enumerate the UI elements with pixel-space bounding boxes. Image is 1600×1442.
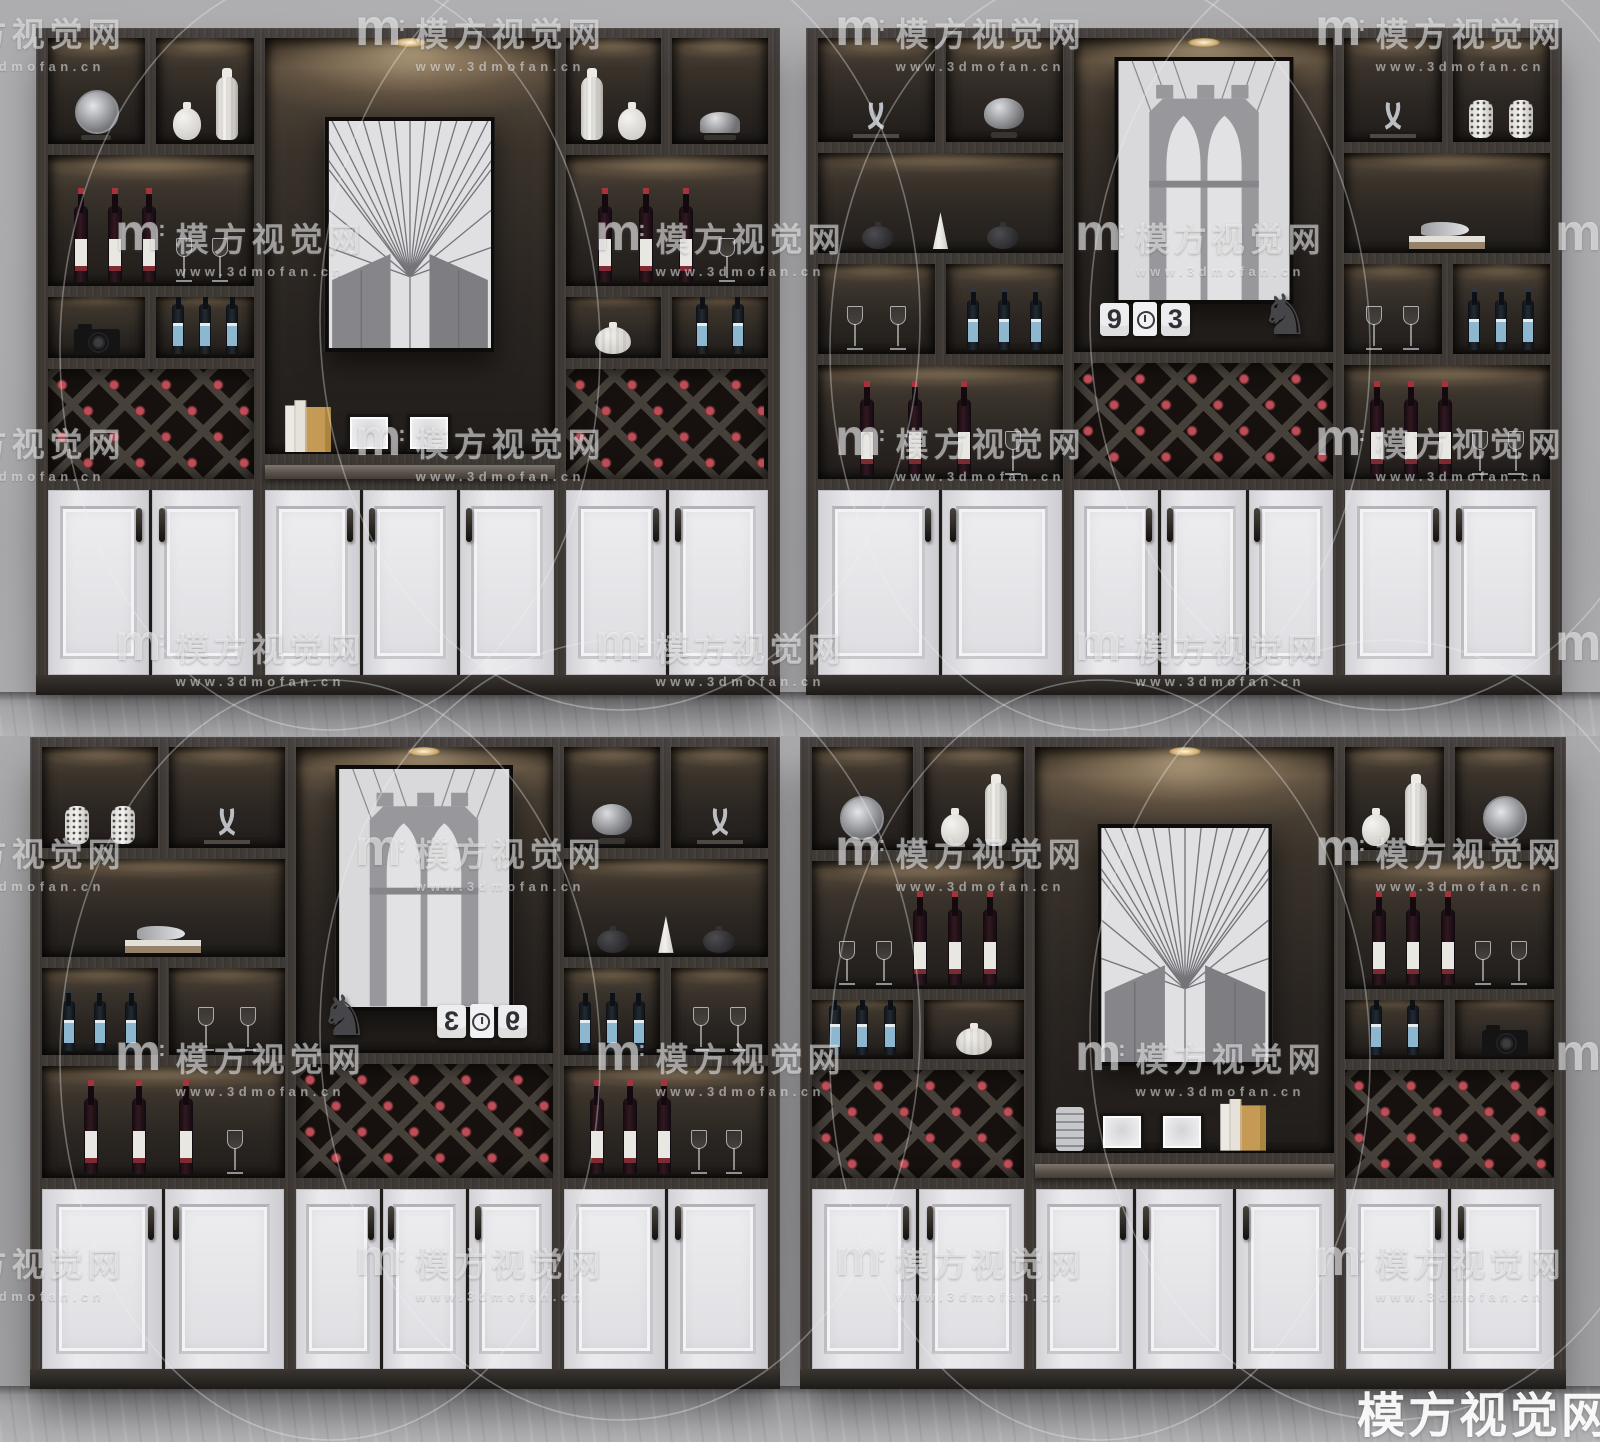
- shelf-niche: [818, 264, 935, 354]
- clock-digit: 3: [1161, 303, 1190, 336]
- liquor-bottle: [1370, 1005, 1382, 1055]
- cabinet-frame: 93♞: [806, 28, 1562, 675]
- shelf-items: [823, 909, 1014, 985]
- cabinet-door: [469, 1189, 552, 1369]
- cabinet-top-left: [36, 28, 780, 695]
- shelf-items: [576, 206, 758, 282]
- lower-doors: [42, 1189, 768, 1369]
- shelf-niche: [946, 38, 1063, 142]
- cabinet-door: [919, 1189, 1023, 1369]
- wine-bottle: [1441, 909, 1455, 985]
- shelf-niche: [812, 861, 1024, 988]
- shelf-niche: [672, 38, 768, 144]
- round-white-vase: [618, 108, 646, 140]
- cabinet-frame: [36, 28, 780, 675]
- shelf-niche: [42, 747, 158, 848]
- shelf-items: [824, 94, 929, 138]
- book-stack: [285, 400, 331, 452]
- counter-board: [1035, 1164, 1334, 1178]
- cabinet-door: [265, 490, 359, 675]
- shelf-items: [1457, 300, 1545, 350]
- shelf-items: [1349, 94, 1437, 138]
- door-group: [1074, 490, 1332, 675]
- shelf-row: [48, 297, 254, 358]
- cabinet-plinth: [36, 675, 780, 695]
- liquor-bottle: [1468, 300, 1480, 350]
- shelf-items: [929, 782, 1020, 846]
- liquor-bottle: [125, 1001, 137, 1051]
- door-group: [1345, 490, 1550, 675]
- shelf-items: [48, 1001, 152, 1051]
- cabinet-frame: [800, 737, 1566, 1369]
- cabinet-column: [812, 747, 1024, 1178]
- cabinet-plinth: [30, 1369, 780, 1389]
- wine-glass: [1511, 941, 1527, 985]
- shelf-items: [1350, 782, 1439, 846]
- shelf-items: [1460, 1030, 1549, 1055]
- cabinet-center-column: 93♞: [296, 747, 553, 1178]
- domed-dish: [696, 110, 744, 140]
- door-group: [1036, 1189, 1334, 1369]
- wine-glass: [726, 1130, 742, 1174]
- shelf-items: [1460, 796, 1549, 846]
- liquor-bottle: [829, 1005, 841, 1055]
- cabinet-door: [668, 1189, 768, 1369]
- shelf-niche: [1453, 38, 1550, 142]
- cabinet-door: [1236, 1189, 1333, 1369]
- cabinet-door: [48, 490, 149, 675]
- liquor-bottle: [1030, 300, 1042, 350]
- shelf-niche: [564, 747, 661, 848]
- wine-bottle: [913, 909, 927, 985]
- cabinet-door: [566, 490, 665, 675]
- wine-rack: [1345, 1070, 1554, 1177]
- shelf-niche: [671, 747, 768, 848]
- tall-white-vase: [216, 76, 238, 140]
- shelf-niche: [818, 38, 935, 142]
- clock-digit: 9: [1100, 303, 1129, 336]
- camera: [1482, 1030, 1528, 1055]
- wine-bottle: [1406, 909, 1420, 985]
- wine-glass: [839, 941, 855, 985]
- wine-glass: [212, 238, 228, 282]
- shelf-items: [574, 916, 758, 953]
- wine-bottle: [179, 1098, 193, 1174]
- door-group: [812, 1189, 1024, 1369]
- liquor-bottle: [172, 304, 184, 354]
- wine-glass: [719, 238, 735, 282]
- liquor-bottle: [1522, 300, 1534, 350]
- shelf-row: [818, 38, 1063, 142]
- liquor-bottle: [967, 300, 979, 350]
- floor-top-panel: [0, 692, 1600, 736]
- door-group: [265, 490, 554, 675]
- cabinet-door: [1136, 1189, 1233, 1369]
- shelf-niche: [48, 38, 145, 144]
- perforated-vase: [1469, 100, 1493, 138]
- lower-doors: [812, 1189, 1554, 1369]
- cabinet-column: [42, 747, 285, 1178]
- wine-glass: [890, 306, 906, 350]
- liquor-bottle: [63, 1001, 75, 1051]
- antler-sculpture: [853, 94, 899, 138]
- shelf-row: [1344, 38, 1550, 142]
- upper-shelving: 93♞: [818, 38, 1550, 479]
- framed-bridge-photo: [325, 117, 495, 352]
- shelf-niche: [924, 1000, 1025, 1060]
- small-photo-frame: [407, 414, 451, 452]
- shelf-items: [676, 800, 763, 844]
- display-niche: 93♞: [296, 747, 553, 1053]
- wine-rack: [1074, 363, 1333, 479]
- antler-sculpture: [1370, 94, 1416, 138]
- shelf-items: [1356, 909, 1544, 985]
- wine-rack: [812, 1070, 1024, 1177]
- shelf-items: [1349, 306, 1437, 350]
- wine-bottle: [590, 1098, 604, 1174]
- shelf-row: [564, 747, 768, 848]
- shelf-niche: [946, 264, 1063, 354]
- shelf-niche: [564, 1066, 768, 1177]
- wine-bottle: [983, 909, 997, 985]
- lower-doors: [48, 490, 768, 675]
- dome-ornament: [591, 804, 633, 844]
- shelf-row: [1345, 1000, 1554, 1060]
- display-niche: [265, 38, 555, 454]
- cabinet-center-column: 93♞: [1074, 38, 1333, 479]
- wine-bottle: [132, 1098, 146, 1174]
- shelf-niche: [812, 1000, 913, 1060]
- shelf-items: [54, 1098, 273, 1174]
- wine-bottle: [142, 206, 156, 282]
- clock-face-icon: [1133, 302, 1157, 336]
- clock-digit: 3: [437, 1005, 466, 1038]
- dark-ceramic-vase: [862, 226, 894, 249]
- shelf-items: [54, 913, 273, 953]
- cabinet-door: [383, 1189, 466, 1369]
- wine-glass: [691, 1130, 707, 1174]
- ceiling-downlight: [408, 747, 440, 756]
- wine-bottle: [657, 1098, 671, 1174]
- shelf-items: [677, 304, 763, 354]
- round-white-vase: [1362, 814, 1390, 846]
- horse-statue: ♞: [319, 988, 369, 1044]
- cabinet-door: [152, 490, 253, 675]
- flip-clock: 93: [1100, 302, 1190, 336]
- clock-digit: 9: [498, 1005, 527, 1038]
- shelf-row: [42, 747, 285, 848]
- cabinet-door: [1161, 490, 1245, 675]
- shelf-items: [952, 300, 1057, 350]
- shelf-row: [566, 38, 768, 144]
- cabinet-column: [1345, 747, 1554, 1178]
- upper-shelving: 93♞: [42, 747, 768, 1178]
- shelf-items: [53, 329, 141, 354]
- shelf-items: [58, 206, 243, 282]
- shelf-niche: [48, 155, 254, 286]
- shelf-row: [42, 968, 285, 1055]
- cabinet-door: [942, 490, 1063, 675]
- wine-bottle: [1370, 399, 1384, 475]
- bird-sculpture: [125, 913, 201, 953]
- small-photo-frame: [1100, 1113, 1144, 1151]
- shelf-niche: [1345, 861, 1554, 988]
- liquor-bottle: [199, 304, 211, 354]
- ceiling-downlight: [394, 38, 426, 47]
- cabinet-plinth: [806, 675, 1562, 695]
- shelf-items: [175, 1007, 279, 1051]
- shelf-niche: [818, 365, 1063, 479]
- liquor-bottle: [633, 1001, 645, 1051]
- shelf-niche: [566, 155, 768, 286]
- cup-stack: [1056, 1107, 1084, 1151]
- shelf-items: [952, 98, 1057, 138]
- wine-glass: [176, 238, 192, 282]
- cabinet-door: [1451, 1189, 1554, 1369]
- horse-statue: ♞: [1260, 287, 1310, 343]
- cabinet-column: [818, 38, 1063, 479]
- shelf-row: [564, 968, 768, 1055]
- bird-sculpture: [1409, 209, 1485, 249]
- shelf-niche: [156, 297, 253, 358]
- shelf-niche: [671, 968, 768, 1055]
- wine-glass: [1403, 306, 1419, 350]
- cabinet-column: [48, 38, 254, 479]
- cabinet-door: [165, 1189, 285, 1369]
- wine-rack: [566, 369, 768, 479]
- disc-ornament: [839, 796, 885, 846]
- liquor-bottle: [94, 1001, 106, 1051]
- wine-bottle: [679, 206, 693, 282]
- perforated-vase: [1509, 100, 1533, 138]
- cabinet-door: [669, 490, 768, 675]
- dark-ceramic-vase: [703, 930, 735, 953]
- small-photo-frame: [1160, 1113, 1204, 1151]
- shelf-niche: [42, 968, 158, 1055]
- liquor-bottle: [856, 1005, 868, 1055]
- wine-glass: [240, 1007, 256, 1051]
- shelf-niche: [1455, 747, 1554, 850]
- wine-bottle: [623, 1098, 637, 1174]
- shelf-items: [570, 76, 656, 140]
- cabinet-bottom-right: [800, 737, 1566, 1389]
- wine-bottle: [84, 1098, 98, 1174]
- display-niche: [1035, 747, 1334, 1153]
- framed-bridge-photo: [1097, 824, 1272, 1066]
- shelf-niche: [156, 38, 253, 144]
- ceiling-downlight: [1169, 747, 1201, 756]
- wine-glass: [1475, 941, 1491, 985]
- wine-glass: [1508, 431, 1524, 475]
- counter-board: [265, 465, 555, 479]
- cabinet-door: [296, 1189, 379, 1369]
- shelf-items: [1350, 1005, 1439, 1055]
- wine-glass: [198, 1007, 214, 1051]
- wine-glass: [693, 1007, 709, 1051]
- shelf-items: [677, 110, 763, 140]
- shelf-items: [1354, 399, 1539, 475]
- shelf-niche: [566, 38, 662, 144]
- cabinet-top-right: 93♞: [806, 28, 1562, 695]
- shelf-row: [818, 264, 1063, 354]
- framed-bridge-photo: [336, 765, 514, 1010]
- cabinet-column: [1344, 38, 1550, 479]
- shelf-row: [566, 297, 768, 358]
- cabinet-frame: 93♞: [30, 737, 780, 1369]
- antler-sculpture: [204, 800, 250, 844]
- wine-bottle: [598, 206, 612, 282]
- cabinet-center-column: [1035, 747, 1334, 1178]
- shelf-items: [830, 399, 1050, 475]
- cabinet-column: [564, 747, 768, 1178]
- door-group: [42, 1189, 284, 1369]
- dark-ceramic-vase: [987, 226, 1019, 249]
- upper-shelving: [812, 747, 1554, 1178]
- wine-bottle: [1372, 909, 1386, 985]
- door-group: [48, 490, 253, 675]
- perforated-vase: [111, 806, 135, 844]
- shelf-items: [161, 304, 249, 354]
- counter-items: [1056, 1099, 1313, 1151]
- liquor-bottle: [226, 304, 238, 354]
- wine-bottle: [74, 206, 88, 282]
- shelf-items: [53, 90, 141, 140]
- liquor-bottle: [696, 304, 708, 354]
- ceiling-downlight: [1188, 38, 1220, 47]
- cone-decanter: [656, 916, 676, 953]
- door-group: [566, 490, 768, 675]
- shelf-items: [676, 1007, 763, 1051]
- shelf-niche: [1344, 365, 1550, 479]
- cabinet-door: [1249, 490, 1333, 675]
- camera: [74, 329, 120, 354]
- wine-bottle: [908, 399, 922, 475]
- shelf-items: [929, 1028, 1020, 1055]
- cabinet-center-column: [265, 38, 555, 479]
- dark-ceramic-vase: [597, 930, 629, 953]
- shelf-niche: [169, 747, 285, 848]
- wine-bottle: [108, 206, 122, 282]
- liquor-bottle: [1407, 1005, 1419, 1055]
- shelf-niche: [1455, 1000, 1554, 1060]
- cabinet-door: [363, 490, 457, 675]
- cabinet-door: [564, 1189, 664, 1369]
- upper-shelving: [48, 38, 768, 479]
- shelf-row: [1344, 264, 1550, 354]
- round-white-vase: [173, 108, 201, 140]
- cabinet-door: [1345, 490, 1446, 675]
- clock-face-icon: [470, 1004, 494, 1038]
- shelf-niche: [1453, 264, 1550, 354]
- cabinet-bottom-left: 93♞: [30, 737, 780, 1389]
- cabinet-door: [42, 1189, 162, 1369]
- shelf-niche: [48, 297, 145, 358]
- liquor-bottle: [606, 1001, 618, 1051]
- wine-bottle: [860, 399, 874, 475]
- wine-glass: [1005, 431, 1021, 475]
- shelf-items: [817, 796, 908, 846]
- shelf-niche: [564, 859, 768, 956]
- wine-bottle: [639, 206, 653, 282]
- shelf-niche: [1345, 747, 1444, 850]
- cabinet-door: [812, 1189, 916, 1369]
- perforated-vase: [65, 806, 89, 844]
- cabinet-door: [1036, 1189, 1133, 1369]
- shelf-items: [1354, 209, 1539, 249]
- small-photo-frame: [347, 414, 391, 452]
- cabinet-plinth: [800, 1369, 1566, 1389]
- wine-bottle: [957, 399, 971, 475]
- round-white-vase: [941, 814, 969, 846]
- shelf-items: [1457, 100, 1545, 138]
- liquor-bottle: [1495, 300, 1507, 350]
- wine-bottle: [948, 909, 962, 985]
- wine-rack: [296, 1064, 553, 1177]
- counter-items: [285, 400, 534, 452]
- cone-decanter: [930, 212, 950, 249]
- shelf-niche: [169, 968, 285, 1055]
- book-stack: [1220, 1099, 1266, 1151]
- shelf-items: [175, 800, 279, 844]
- flip-clock: 93: [437, 1004, 527, 1038]
- shelf-row: [1345, 747, 1554, 850]
- shelf-items: [569, 1001, 656, 1051]
- shelf-niche: [1344, 38, 1441, 142]
- shelf-niche: [564, 968, 661, 1055]
- floor-bottom-panel: [0, 1386, 1600, 1442]
- liquor-bottle: [579, 1001, 591, 1051]
- shelf-items: [824, 306, 929, 350]
- shelf-niche: [1345, 1000, 1444, 1060]
- wine-glass: [227, 1130, 243, 1174]
- liquor-bottle: [884, 1005, 896, 1055]
- display-niche: 93♞: [1074, 38, 1333, 352]
- dome-ornament: [983, 98, 1025, 138]
- door-group: [564, 1189, 768, 1369]
- shelf-niche: [924, 747, 1025, 850]
- shelf-row: [812, 1000, 1024, 1060]
- disc-ornament: [1482, 796, 1528, 846]
- cabinet-column: [566, 38, 768, 479]
- door-group: [296, 1189, 552, 1369]
- shelf-niche: [812, 747, 913, 850]
- shelf-items: [569, 804, 656, 844]
- wine-glass: [730, 1007, 746, 1051]
- wine-rack: [48, 369, 254, 479]
- shelf-items: [574, 1098, 758, 1174]
- shelf-row: [48, 38, 254, 144]
- tall-white-vase: [1405, 782, 1427, 846]
- tall-white-vase: [985, 782, 1007, 846]
- tall-white-vase: [581, 76, 603, 140]
- cabinet-door: [460, 490, 554, 675]
- cabinet-door: [1074, 490, 1158, 675]
- shelf-items: [48, 806, 152, 844]
- ribbed-white-vase: [595, 327, 631, 354]
- cabinet-door: [1346, 1189, 1449, 1369]
- shelf-niche: [42, 1066, 285, 1177]
- door-group: [1346, 1189, 1554, 1369]
- disc-ornament: [74, 90, 120, 140]
- wine-bottle: [1404, 399, 1418, 475]
- framed-bridge-photo: [1114, 57, 1293, 304]
- shelf-niche: [1344, 264, 1441, 354]
- antler-sculpture: [697, 800, 743, 844]
- wine-glass: [876, 941, 892, 985]
- ribbed-white-vase: [956, 1028, 992, 1055]
- liquor-bottle: [732, 304, 744, 354]
- shelf-items: [570, 327, 656, 354]
